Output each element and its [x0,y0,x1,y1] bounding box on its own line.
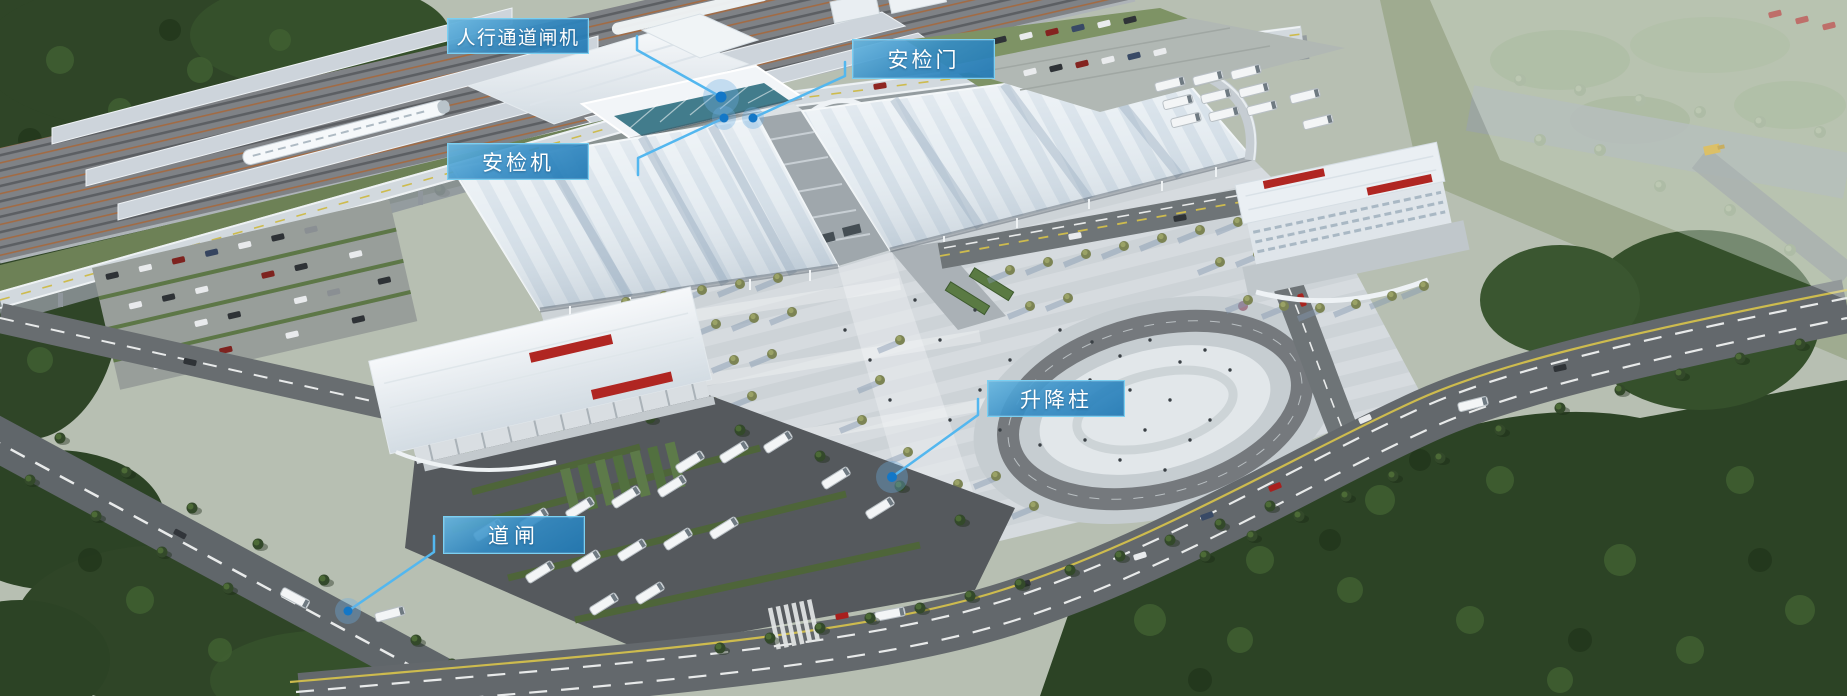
annotation-label: 人行通道闸机 [456,23,579,50]
scene-render [0,0,1847,696]
annotation-pedestrian-gate: 人行通道闸机 [447,18,589,54]
annotation-label: 道闸 [488,520,540,550]
station-aerial-scene: 人行通道闸机 安检门 安检机 升降柱 道闸 [0,0,1847,696]
annotation-security-scanner: 安检机 [447,143,589,180]
annotation-label: 安检机 [482,147,554,177]
annotation-lifting-bollard: 升降柱 [987,380,1125,417]
annotation-label: 安检门 [888,44,960,74]
annotation-road-barrier: 道闸 [443,516,585,554]
annotation-label: 升降柱 [1020,384,1092,414]
annotation-security-door: 安检门 [852,39,995,79]
